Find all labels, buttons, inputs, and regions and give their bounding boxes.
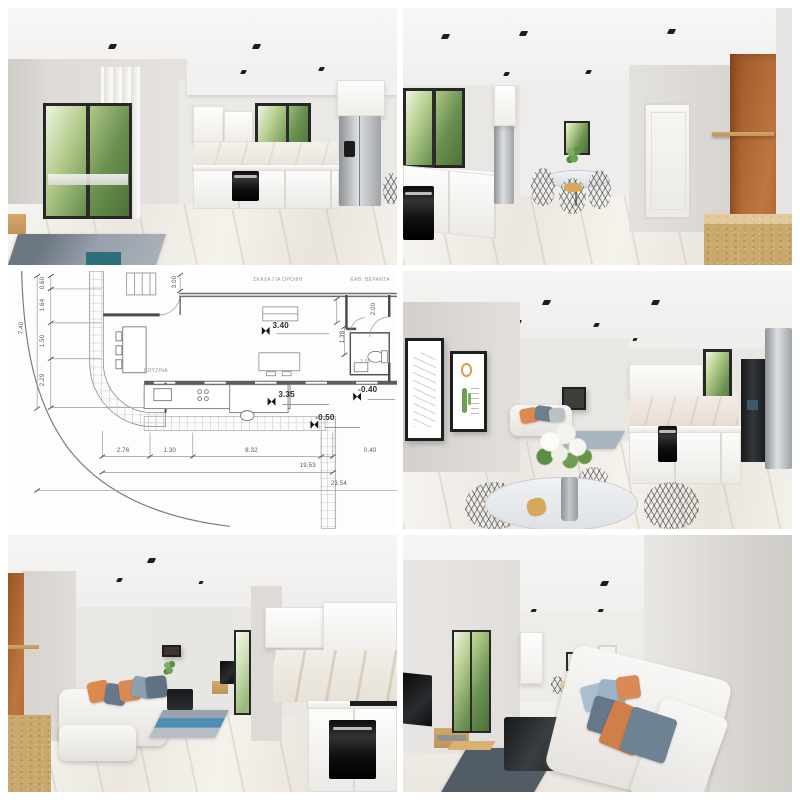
cooktop (350, 701, 397, 706)
teal-ottoman (86, 252, 121, 265)
sliding-door (452, 630, 491, 733)
dim-left-chain: 1.50 (40, 335, 46, 347)
dim-left-chain: 0.60 (40, 277, 46, 289)
dim-right-chain: 2.00 (371, 303, 377, 315)
kitchen-window (403, 88, 465, 168)
upper-cabinets (629, 364, 703, 397)
osb-bench (8, 715, 51, 792)
fridge (339, 116, 382, 206)
sofa-chaise (59, 725, 137, 761)
photo-collage: ΣΚΑΛΑ ΓΙΑ ΟΡΟΦΗ ΚΑΘ. ΒΕΡΑΝΤΑ ΚΟΥΖΙΝΑ 7.4… (0, 0, 800, 800)
panel-kitchen-dining-accent (403, 8, 792, 265)
osb-bench (704, 214, 792, 265)
panel-living-sofa-kitchen (8, 535, 397, 792)
dim-wc: 2.00 (360, 360, 371, 365)
upper-cabinets (193, 106, 224, 142)
tall-cabinet (494, 85, 515, 126)
interior-door (644, 103, 691, 219)
level-yard-upper: -0.40 (358, 386, 377, 394)
wood-shelf (8, 645, 39, 649)
panel-living-room-reverse (403, 535, 792, 792)
dim-left-total: 7.40 (19, 322, 25, 334)
dim-bottom-chain: 1.30 (164, 448, 176, 454)
art-cactus (462, 388, 467, 414)
base-cabinets (193, 170, 339, 209)
base-cabinets (629, 432, 742, 483)
wood-basket (8, 214, 26, 235)
fridge-edge (765, 328, 792, 470)
upper-cabinets (265, 607, 327, 648)
floor-plan-drawing (8, 271, 397, 528)
dim-bottom-total: 23.54 (331, 481, 347, 487)
pillow-slate (145, 675, 169, 699)
tv (220, 661, 234, 684)
door-mullion (86, 106, 90, 216)
wire-chair (588, 170, 611, 209)
backsplash (629, 396, 738, 427)
door-mullion (470, 632, 473, 731)
wire-chair-edge (383, 173, 397, 204)
oven (232, 171, 259, 201)
oven (403, 186, 434, 240)
dim-bottom-total: 19.53 (300, 463, 316, 469)
table-plant (564, 144, 583, 167)
built-in-fridge-column (741, 359, 764, 462)
stairs (127, 273, 156, 295)
art-sketch (413, 353, 436, 427)
panel-floor-plan: ΣΚΑΛΑ ΓΙΑ ΟΡΟΦΗ ΚΑΘ. ΒΕΡΑΝΤΑ ΚΟΥΖΙΝΑ 7.4… (8, 271, 397, 528)
room-label-kitchen: ΚΟΥΖΙΝΑ (144, 369, 168, 374)
sliding-balcony-door (43, 103, 132, 219)
coffee-table (167, 689, 192, 710)
art-frame-line-drawing (405, 338, 444, 441)
dispenser-light (747, 400, 759, 410)
fridge-divider (359, 116, 360, 206)
level-living: 3.40 (273, 322, 289, 330)
panel-living-dining-kitchen (403, 271, 792, 528)
ceiling-spotlight (666, 29, 675, 34)
window-mullion (432, 91, 436, 165)
backsplash-marble (273, 650, 397, 701)
back-kitchen-cabinets (520, 632, 543, 683)
pillow-orange (615, 675, 641, 701)
wire-chair (531, 168, 554, 207)
osb-bench-top (704, 214, 792, 224)
kitchen-island-plan (116, 327, 146, 373)
upper-cabinets (224, 111, 253, 142)
panel-kitchen-sliding-door (8, 8, 397, 265)
flower-vase (561, 477, 579, 521)
area-rug (149, 710, 229, 738)
dim-door: 3.00 (173, 276, 179, 288)
wood-shelf (712, 132, 774, 137)
wire-chair (644, 482, 698, 528)
upper-cabinets (323, 602, 397, 653)
art-dots (471, 384, 480, 414)
dim-right-chain: 1.38 (340, 331, 346, 343)
dim-bottom-chain: 8.32 (245, 448, 257, 454)
room-label-veranda: ΚΑΘ. ΒΕΡΑΝΤΑ (350, 278, 389, 283)
level-terrace: 3.35 (278, 391, 294, 399)
back-wall-art (162, 645, 181, 657)
tall-cabinet (337, 80, 386, 116)
dim-bottom-chain: 2.76 (117, 448, 129, 454)
art-frame-cactus (450, 351, 487, 432)
dim-left-chain: 1.64 (40, 299, 46, 311)
dim-bottom-chain: 0.40 (364, 448, 376, 454)
level-yard-lower: -0.50 (315, 414, 334, 422)
room-label-stairs: ΣΚΑΛΑ ΓΙΑ ΟΡΟΦΗ (253, 278, 302, 283)
chair-seat-tan (564, 183, 582, 192)
door-panel-line (651, 112, 685, 210)
dim-left-chain: 2.29 (40, 374, 46, 386)
flower-bouquet (531, 415, 593, 482)
art-sun (461, 363, 472, 377)
backsplash (193, 142, 337, 168)
oven (658, 426, 677, 462)
sliding-door (234, 630, 252, 715)
tv (403, 672, 432, 727)
balcony-rail (48, 174, 128, 185)
fridge (494, 126, 513, 203)
living-furniture-plan (259, 307, 300, 376)
tan-mat (447, 741, 495, 750)
oven (329, 720, 376, 779)
fridge-dispenser (344, 141, 355, 157)
